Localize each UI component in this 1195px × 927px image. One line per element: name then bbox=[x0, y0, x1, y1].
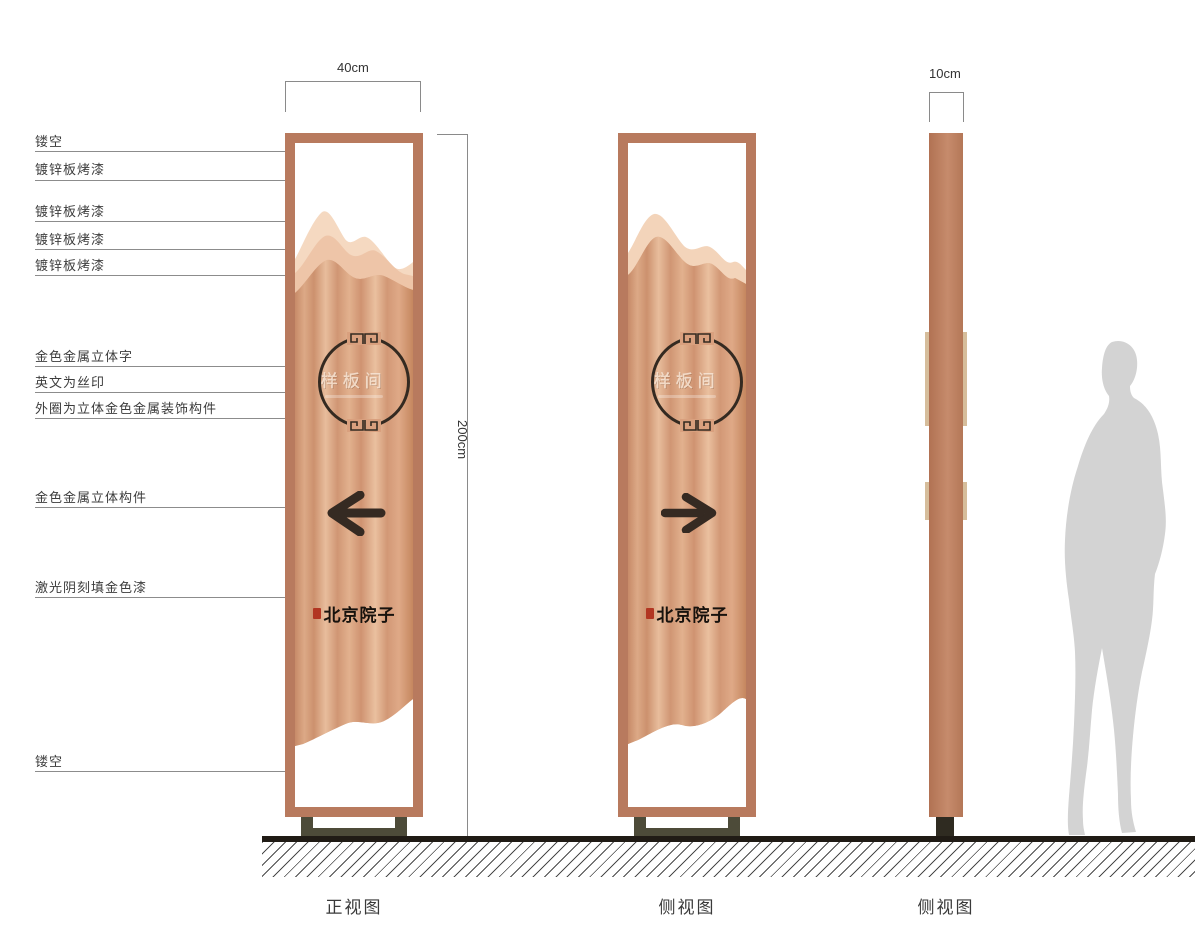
front-sign-base bbox=[301, 817, 407, 838]
room-name-subtitle-faint bbox=[658, 395, 716, 398]
side-profile-foot bbox=[936, 817, 954, 838]
callout-leader-line bbox=[35, 597, 315, 598]
callout-label: 金色金属立体构件 bbox=[35, 487, 147, 506]
callout-leader-line bbox=[35, 249, 294, 250]
callout-leader-line bbox=[35, 418, 315, 419]
side-profile-protrusion bbox=[925, 332, 929, 426]
ground-hatch bbox=[262, 842, 1195, 877]
callout-label: 金色金属立体字 bbox=[35, 346, 133, 365]
arrow-right-icon bbox=[661, 493, 717, 533]
brand-calligraphy: 北京院子 bbox=[628, 601, 746, 626]
callout-label: 镀锌板烤漆 bbox=[35, 255, 105, 274]
callout-label: 激光阴刻填金色漆 bbox=[35, 577, 147, 596]
dimension-bracket bbox=[420, 81, 421, 112]
callout-label: 镀锌板烤漆 bbox=[35, 229, 105, 248]
view-label-profile: 侧视图 bbox=[886, 893, 1006, 918]
callout-label: 镀锌板烤漆 bbox=[35, 159, 105, 178]
greek-key-ornament-icon bbox=[347, 419, 381, 432]
dimension-bracket bbox=[437, 134, 467, 135]
callout-leader-line bbox=[35, 180, 288, 181]
greek-key-ornament-icon bbox=[680, 419, 714, 432]
side-panel-graphic bbox=[628, 143, 746, 807]
callout-label: 镂空 bbox=[35, 131, 63, 150]
side-sign-base bbox=[634, 817, 740, 838]
front-view-sign: 样板间 北京院子 bbox=[285, 133, 423, 817]
callout-leader-line bbox=[35, 771, 303, 772]
view-label-front: 正视图 bbox=[294, 893, 414, 918]
side-profile-protrusion bbox=[963, 332, 967, 426]
arrow-left-icon bbox=[326, 491, 386, 536]
side-profile-protrusion bbox=[963, 482, 967, 520]
seal-stamp-icon bbox=[313, 608, 321, 619]
callout-leader-line bbox=[35, 275, 291, 276]
side-profile-protrusion bbox=[925, 482, 929, 520]
side-view-sign: 样板间 北京院子 bbox=[618, 133, 756, 817]
greek-key-ornament-icon bbox=[347, 332, 381, 345]
callout-label: 英文为丝印 bbox=[35, 372, 105, 391]
callout-leader-line bbox=[35, 151, 307, 152]
dimension-bracket bbox=[285, 81, 420, 82]
signage-design-sheet: 镂空 镀锌板烤漆 镀锌板烤漆 镀锌板烤漆 镀锌板烤漆 金色金属立体字 英文为丝印… bbox=[0, 0, 1195, 927]
dimension-side-depth: 10cm bbox=[929, 66, 961, 81]
front-panel-graphic bbox=[295, 143, 413, 807]
room-name-text: 样板间 bbox=[295, 367, 413, 392]
brand-name-text: 北京院子 bbox=[324, 606, 396, 626]
dimension-bracket bbox=[285, 81, 286, 112]
dimension-height-line bbox=[467, 134, 468, 836]
human-silhouette bbox=[1040, 338, 1172, 836]
dimension-bracket bbox=[929, 92, 930, 122]
dimension-bracket bbox=[963, 92, 964, 122]
callout-label: 外圈为立体金色金属装饰构件 bbox=[35, 398, 217, 417]
brand-name-text: 北京院子 bbox=[657, 606, 729, 626]
callout-leader-line bbox=[35, 221, 325, 222]
greek-key-ornament-icon bbox=[680, 332, 714, 345]
dimension-bracket bbox=[929, 92, 964, 93]
dimension-height: 200cm bbox=[455, 420, 470, 459]
side-profile-bar bbox=[929, 133, 963, 817]
room-name-subtitle-faint bbox=[325, 395, 383, 398]
brand-calligraphy: 北京院子 bbox=[295, 601, 413, 626]
seal-stamp-icon bbox=[646, 608, 654, 619]
room-name-text: 样板间 bbox=[628, 367, 746, 392]
dimension-front-width: 40cm bbox=[337, 60, 369, 75]
callout-label: 镀锌板烤漆 bbox=[35, 201, 105, 220]
callout-label: 镂空 bbox=[35, 751, 63, 770]
view-label-side: 侧视图 bbox=[627, 893, 747, 918]
